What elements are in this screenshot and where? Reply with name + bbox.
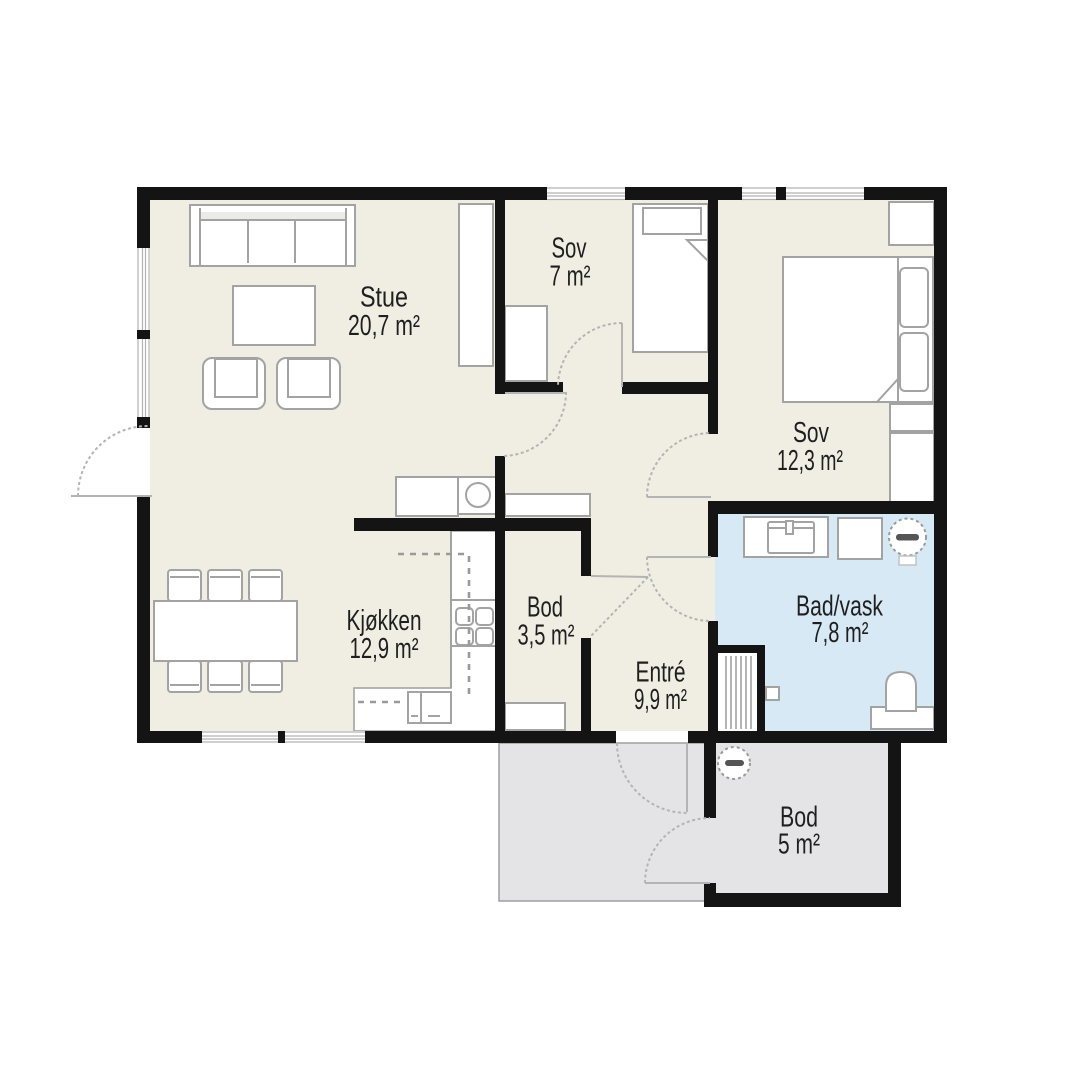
svg-text:3,5 m²: 3,5 m²	[518, 620, 575, 652]
svg-text:12,9 m²: 12,9 m²	[350, 633, 419, 665]
svg-text:9,9 m²: 9,9 m²	[634, 684, 687, 716]
svg-text:7,8 m²: 7,8 m²	[812, 617, 869, 649]
svg-text:12,3 m²: 12,3 m²	[777, 445, 843, 477]
svg-text:5 m²: 5 m²	[778, 829, 820, 861]
svg-text:Stue: Stue	[360, 282, 408, 314]
svg-text:20,7 m²: 20,7 m²	[348, 310, 420, 342]
svg-text:7 m²: 7 m²	[550, 261, 591, 293]
